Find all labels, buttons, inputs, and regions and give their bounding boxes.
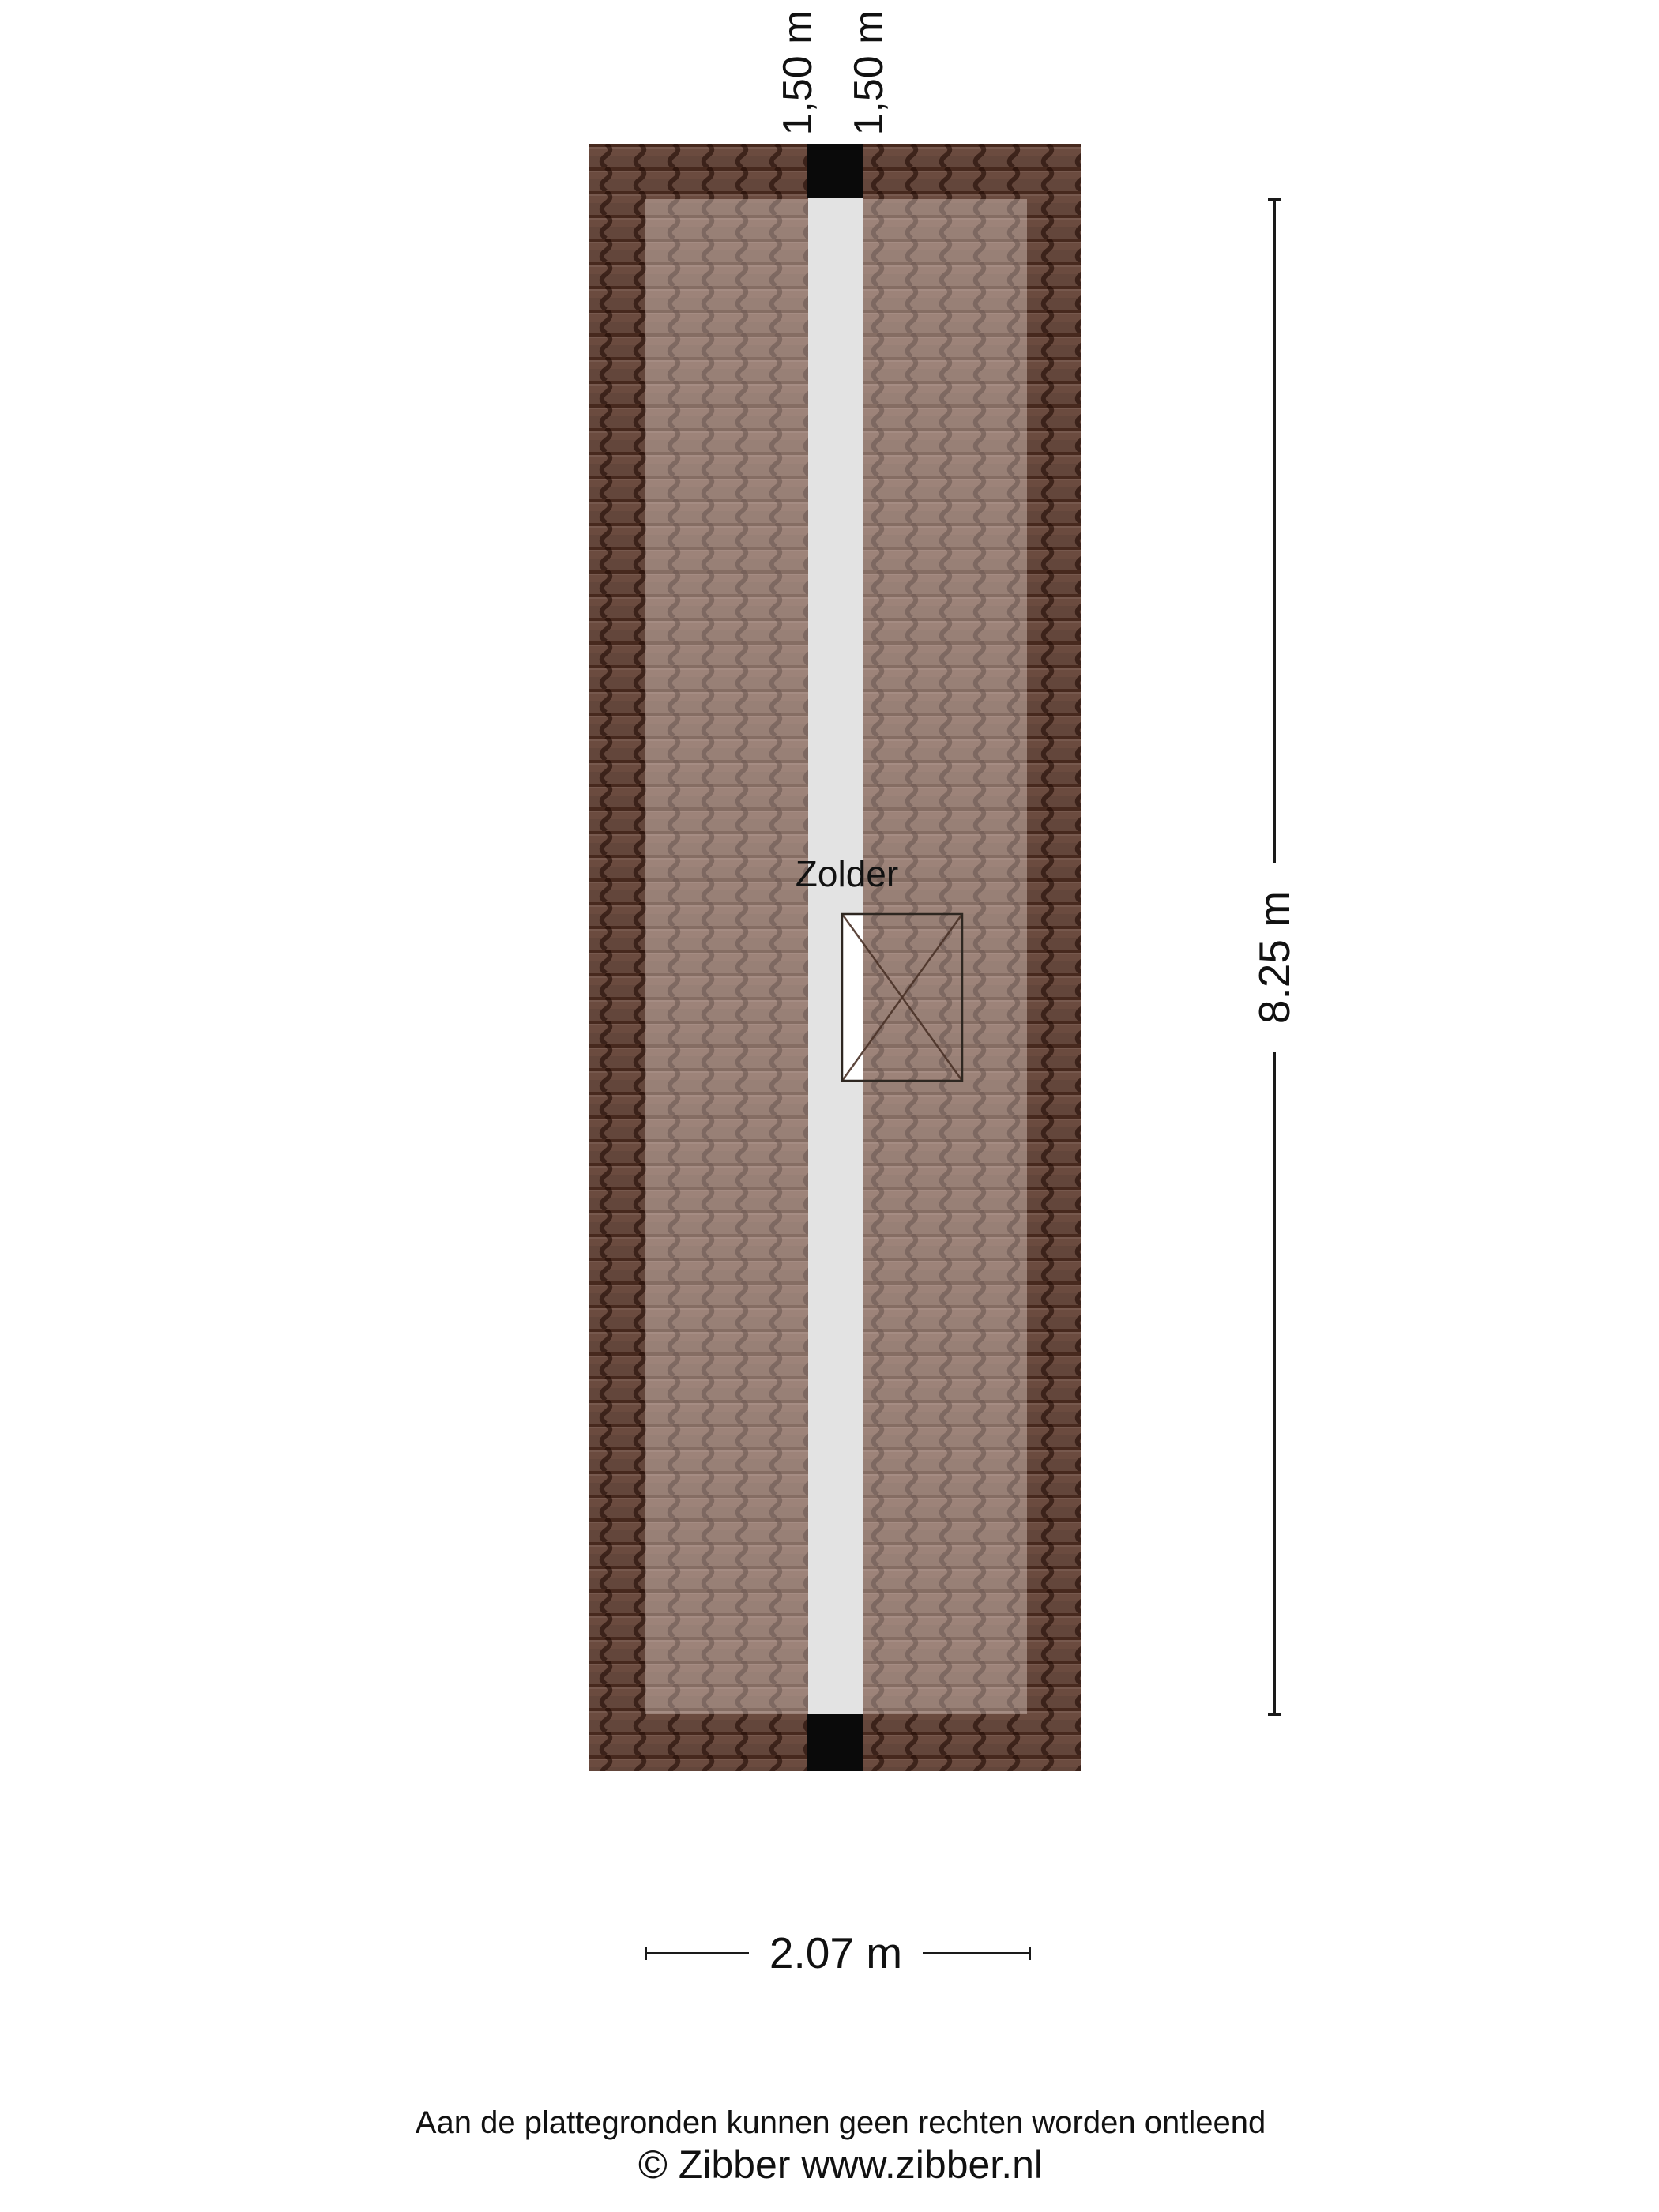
ridge-block-bottom <box>807 1714 863 1771</box>
dimension-cap-bottom <box>1268 1713 1281 1716</box>
footer-disclaimer: Aan de plattegronden kunnen geen rechten… <box>22 2105 1659 2141</box>
footer-copyright: © Zibber www.zibber.nl <box>22 2142 1659 2187</box>
dimension-label-height: 8.25 m <box>1252 863 1296 1052</box>
room-label: Zolder <box>752 852 942 896</box>
floorplan-page: 1,50 m 1,50 m <box>0 0 1659 2212</box>
dimension-cap-top <box>1268 198 1281 201</box>
height-line-label-right: 1,50 m <box>845 0 893 152</box>
dimension-cap-left <box>645 1947 647 1960</box>
footer: Aan de plattegronden kunnen geen rechten… <box>22 2105 1659 2187</box>
height-line-label-left: 1,50 m <box>774 0 822 152</box>
roof-plan-svg <box>589 144 1081 1771</box>
dimension-cap-right <box>1029 1947 1031 1960</box>
attic-roof-plan <box>589 144 1081 1771</box>
ridge-block-top <box>807 144 863 198</box>
dimension-label-width: 2.07 m <box>749 1929 923 1977</box>
